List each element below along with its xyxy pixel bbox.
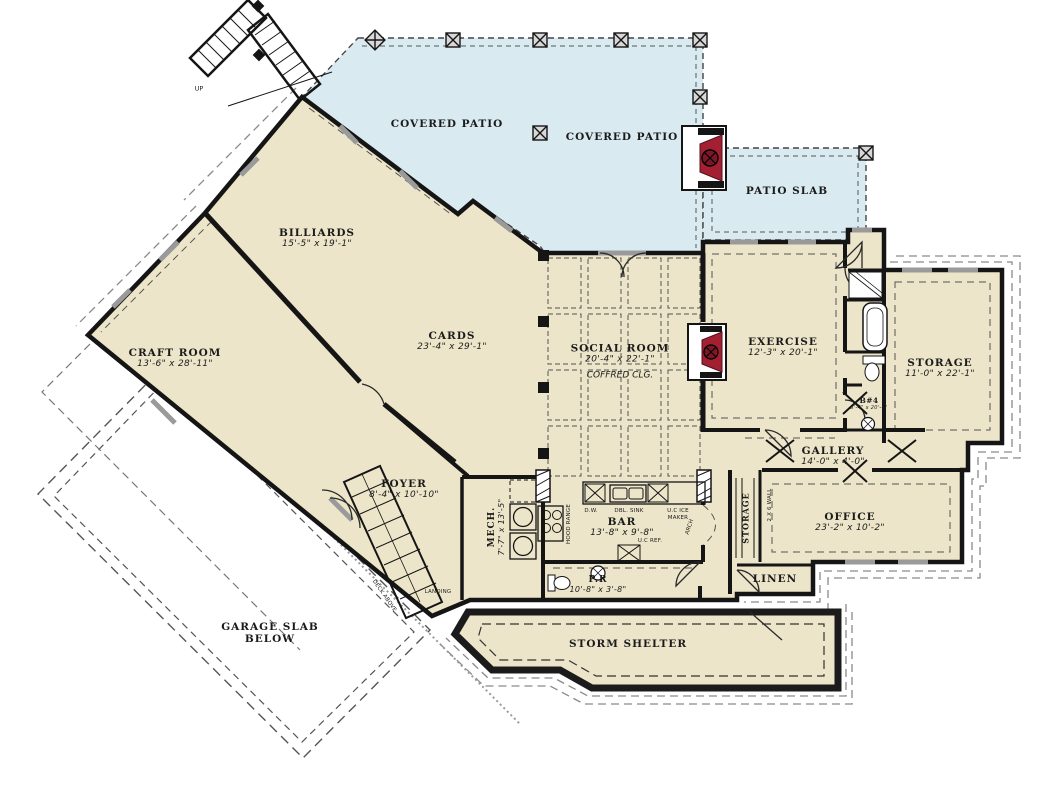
ice-maker-label-2: MAKER <box>668 515 688 521</box>
room-label-bath-4: B#45'-4" x 20'-6" <box>850 397 887 411</box>
room-label-cards: CARDS23'-4" x 29'-1" <box>417 330 487 352</box>
room-label-garage-slab: GARAGE SLABBELOW <box>221 621 319 645</box>
room-label-storm-shelter: STORM SHELTER <box>569 638 687 650</box>
room-label-storage: STORAGE11'-0" x 22'-1" <box>905 357 975 379</box>
floor-plan: COVERED PATIO COVERED PATIO PATIO SLAB B… <box>0 0 1059 800</box>
room-label-exercise: EXERCISE12'-3" x 20'-1" <box>748 336 818 358</box>
room-label-gallery: GALLERY14'-0" x 4'-0" <box>801 445 865 467</box>
uc-ref-label: U.C REF. <box>638 538 662 544</box>
room-label-covered-patio-2: COVERED PATIO <box>566 131 679 143</box>
room-label-patio-slab: PATIO SLAB <box>746 185 828 197</box>
room-label-office: OFFICE23'-2" x 10'-2" <box>815 511 885 533</box>
room-label-craft-room: CRAFT ROOM13'-6" x 28'-11" <box>129 347 222 369</box>
room-label-foyer: FOYER8'-4" x 10'-10" <box>369 478 439 500</box>
room-label-powder-room: P.R10'-8" x 3'-8" <box>569 575 626 595</box>
room-label-covered-patio-1: COVERED PATIO <box>391 118 504 130</box>
exterior-stairs <box>190 0 332 106</box>
fireplace-icon <box>682 126 726 190</box>
room-label-storage-closet: STORAGE <box>741 492 750 543</box>
hood-range-label: HOOD RANGE <box>566 504 572 544</box>
floor-plan-drawing <box>0 0 1059 800</box>
up-annotation: UP <box>195 85 204 92</box>
wall-note-annotation: 2 X 6 WALL <box>767 488 773 521</box>
ice-maker-label-1: U.C ICE <box>667 508 689 514</box>
double-sink-label: DBL. SINK <box>614 508 643 514</box>
room-label-linen: LINEN <box>753 573 798 585</box>
room-label-social-room: SOCIAL ROOM20'-4" x 22'-1"COFFRED CLG. <box>571 343 670 382</box>
fireplace-icon <box>688 324 726 380</box>
landing-annotation: LANDING <box>425 589 452 595</box>
room-label-billiards: BILLIARDS15'-5" x 19'-1" <box>279 227 355 249</box>
dishwasher-label: D.W. <box>584 508 597 514</box>
room-label-bar: BAR13'-8" x 9'-8" <box>590 516 654 538</box>
room-label-mech: MECH.7'-7" x 13'-5" <box>487 498 507 555</box>
